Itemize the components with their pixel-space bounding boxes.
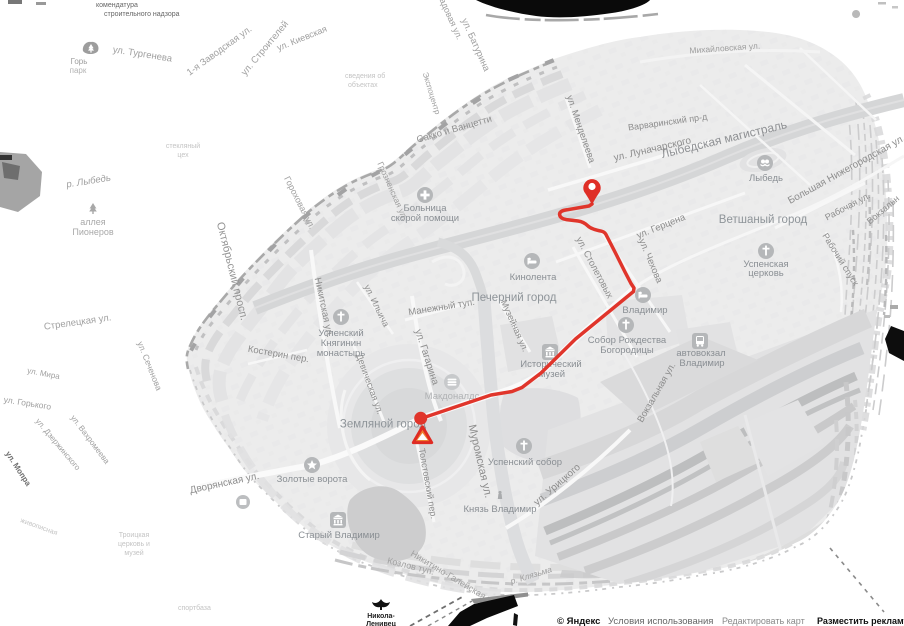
svg-text:Условия использования: Условия использования [608, 616, 713, 626]
svg-text:скорой помощи: скорой помощи [391, 213, 459, 224]
svg-text:спортбаза: спортбаза [178, 604, 211, 612]
svg-text:парк: парк [70, 66, 87, 75]
svg-text:Разместить рекламу: Разместить рекламу [817, 616, 904, 626]
svg-text:Кинолента: Кинолента [510, 272, 557, 283]
svg-text:Ленивец: Ленивец [366, 621, 396, 626]
svg-text:Князь Владимир: Князь Владимир [463, 504, 536, 515]
svg-text:Ветшаный город: Ветшаный город [719, 214, 808, 226]
svg-text:Никола-: Никола- [367, 613, 395, 620]
svg-text:Золотые ворота: Золотые ворота [277, 474, 348, 485]
svg-text:Старый Владимир: Старый Владимир [298, 530, 380, 541]
svg-text:аллея: аллея [80, 217, 106, 227]
svg-text:монастырь: монастырь [317, 348, 366, 359]
svg-text:Лыбедь: Лыбедь [749, 173, 783, 184]
svg-text:церковь: церковь [748, 268, 783, 279]
svg-text:Земляной город: Земляной город [340, 419, 426, 431]
svg-text:сведения об: сведения об [345, 72, 385, 80]
svg-text:Троицкая: Троицкая [119, 532, 150, 539]
svg-text:Горь: Горь [71, 57, 88, 66]
svg-text:строительного надзора: строительного надзора [104, 11, 180, 18]
svg-text:Редактировать карт: Редактировать карт [722, 616, 805, 626]
svg-text:комендатура: комендатура [96, 2, 138, 9]
svg-text:Успенский собор: Успенский собор [488, 457, 562, 468]
svg-text:Владимир: Владимир [622, 305, 667, 316]
svg-text:Владимир: Владимир [679, 358, 724, 369]
svg-text:© Яндекс: © Яндекс [557, 616, 600, 626]
svg-text:объектах: объектах [348, 81, 378, 89]
svg-text:музей: музей [124, 549, 143, 557]
svg-text:стекляный: стекляный [166, 142, 200, 150]
svg-text:цех: цех [177, 152, 189, 159]
svg-text:Пионеров: Пионеров [72, 227, 113, 237]
svg-text:церковь и: церковь и [118, 541, 150, 548]
svg-text:Богородицы: Богородицы [600, 345, 654, 356]
svg-text:Печерний город: Печерний город [471, 292, 556, 304]
